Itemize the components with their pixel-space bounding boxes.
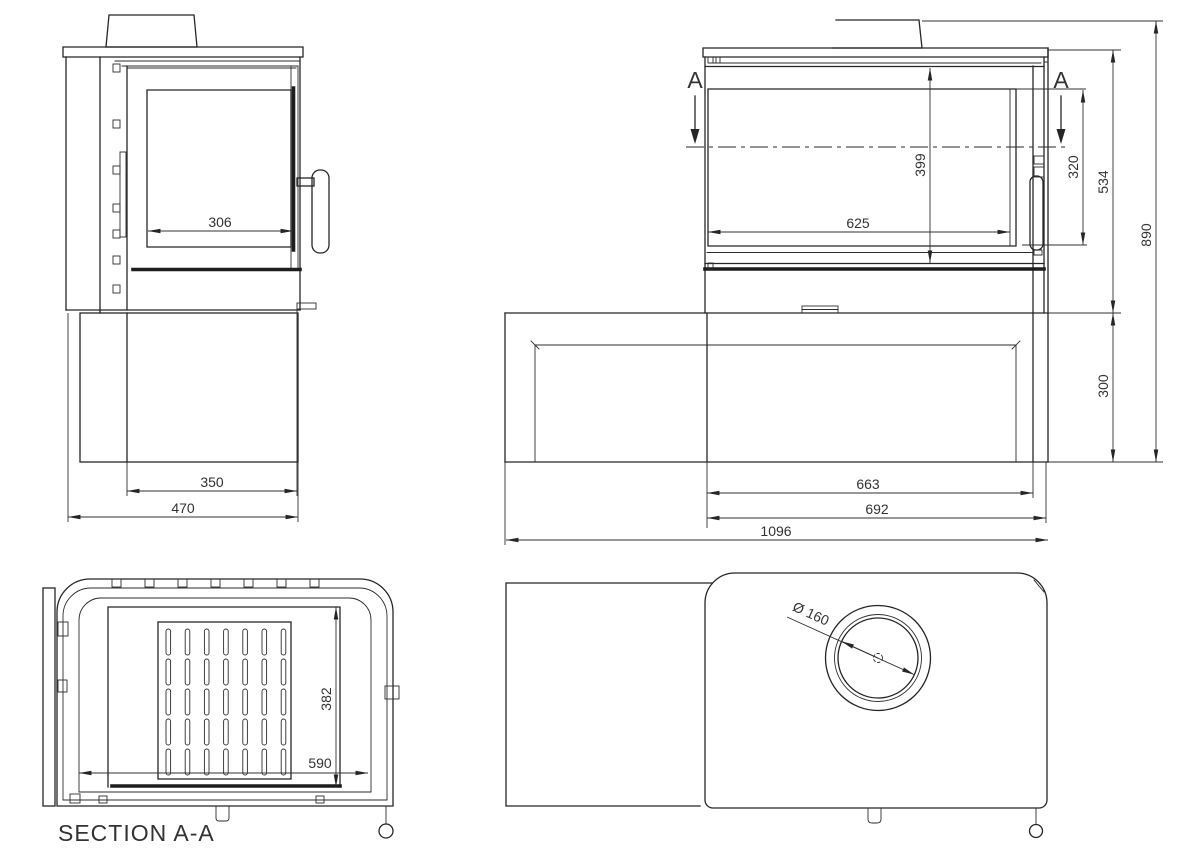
grate-slots — [166, 629, 286, 775]
technical-drawing-page: 306 350 470 — [0, 0, 1200, 848]
section-grate-panel — [158, 622, 291, 779]
top-handle-knob — [1030, 825, 1043, 838]
dim-overall-depth: 470 — [171, 500, 195, 516]
side-flue-collar — [106, 15, 197, 47]
side-view: 306 350 470 — [63, 15, 329, 522]
dim-section-width: 590 — [308, 755, 332, 771]
dim-overall-width: 1096 — [760, 523, 791, 539]
dim-firebox-width: 663 — [856, 476, 880, 492]
top-bottom-tab — [868, 808, 881, 823]
section-bottom-tab — [216, 806, 229, 821]
dim-stove-width: 692 — [865, 501, 889, 517]
section-title: SECTION A-A — [58, 820, 215, 846]
dim-overall-height: 890 — [1138, 223, 1154, 247]
section-marker-a-right: A — [1053, 67, 1069, 93]
section-handle-knob — [379, 824, 393, 838]
section-side-shield — [43, 588, 55, 806]
side-hinge-bar — [120, 152, 126, 237]
dim-plinth-height: 300 — [1095, 374, 1111, 398]
dim-glass-height: 399 — [912, 153, 928, 177]
dim-stove-height: 534 — [1095, 170, 1111, 194]
dim-glass-width: 625 — [846, 215, 870, 231]
dim-door-height: 320 — [1065, 155, 1081, 179]
front-handle-grip — [1030, 176, 1043, 250]
dim-flue-diameter: Ø 160 — [790, 598, 832, 628]
stove-dimension-drawing: 306 350 470 — [0, 0, 1200, 848]
top-stove-outline — [705, 573, 1047, 808]
section-arrow-right — [1057, 129, 1066, 144]
dim-section-depth: 382 — [318, 687, 334, 711]
front-view: 399 320 534 300 890 625 663 692 1096 A A — [505, 20, 1163, 545]
front-door-hinge-top — [1034, 156, 1044, 164]
section-view: 382 590 SECTION A-A — [43, 579, 399, 846]
section-arrow-left — [691, 129, 700, 144]
top-bench-outline — [506, 583, 712, 806]
side-top-plate — [63, 47, 303, 57]
top-view: Ø 160 — [506, 573, 1047, 838]
section-marker-a-left: A — [687, 67, 703, 93]
dim-plinth-depth: 350 — [200, 474, 224, 490]
dim-glass-depth: 306 — [208, 214, 232, 230]
bench-inset-panel — [535, 345, 1016, 462]
front-top-plate — [703, 48, 1048, 57]
side-plinth — [80, 313, 298, 462]
front-flue-collar — [833, 20, 922, 48]
